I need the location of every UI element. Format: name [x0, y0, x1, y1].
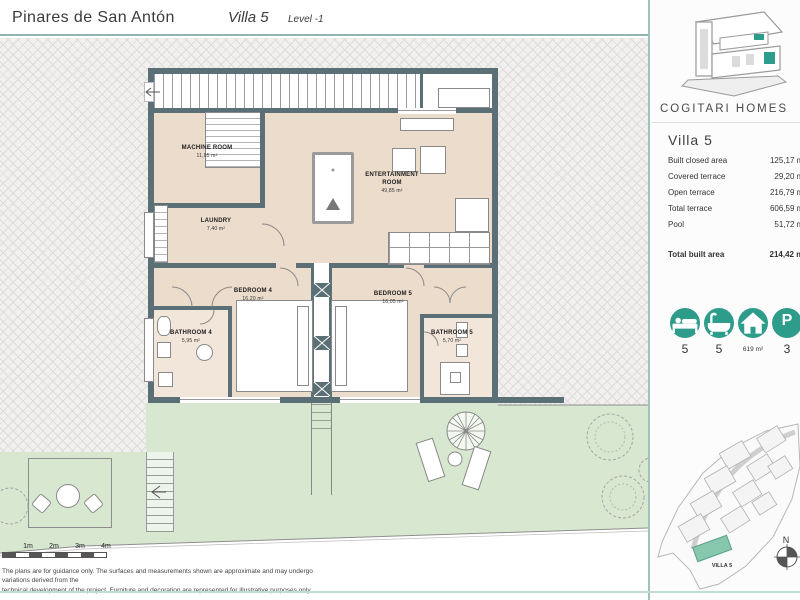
bed-5-pillow: [335, 306, 347, 386]
staircase: [154, 74, 420, 110]
parking-count: 3: [767, 342, 800, 356]
exterior-steps-left: [146, 452, 174, 532]
spec-row-covered-terrace: Covered terrace 29,20 m²: [668, 172, 800, 187]
scale-bar: [2, 552, 107, 558]
shower-4: [196, 344, 213, 361]
parking-icon: P: [772, 308, 800, 338]
plot-boundary-line: [0, 528, 648, 553]
room-label-laundry: LAUNDRY 7,40 m²: [189, 218, 243, 234]
wall-bath4-top: [154, 306, 232, 310]
sofa-corner: [455, 198, 489, 232]
window-sill: [400, 118, 454, 131]
spec-row-pool: Pool 51,72 m²: [668, 220, 800, 235]
room-label-bedroom4: BEDROOM 4 16,20 m²: [223, 288, 283, 304]
plan-sheet: Pinares de San Antón Villa 5 Level -1: [0, 0, 800, 600]
project-title: Pinares de San Antón: [12, 9, 175, 27]
wall-machine-right: [260, 108, 265, 208]
laundry-window: [144, 212, 154, 258]
wall-corridor-a: [154, 263, 276, 268]
house-icon: [738, 308, 768, 338]
sidebar: [650, 0, 800, 600]
room-label-entertainment: ENTERTAINMENT ROOM 49,85 m²: [359, 172, 425, 195]
sofa-sectional: [388, 232, 490, 265]
scale-label-4m: 4m: [101, 543, 111, 550]
shower-5-drain: [450, 372, 461, 383]
landing-window: [438, 88, 490, 108]
spec-row-built-closed: Built closed area 125,17 m²: [668, 156, 800, 171]
wall-bath5: [420, 314, 424, 397]
level-label: Level -1: [288, 14, 324, 25]
sidebar-villa-title: Villa 5: [668, 132, 713, 148]
bathroom4-window: [144, 318, 154, 382]
spec-row-total-built: Total built area 214,42 m²: [668, 250, 800, 265]
villa-title-header: Villa 5: [228, 9, 269, 26]
bottom-accent-line: [0, 591, 800, 593]
room-label-bathroom5: BATHROOM 5 5,70 m²: [426, 330, 478, 346]
armchair-1: [392, 148, 416, 172]
bedroom-partition: [311, 263, 332, 397]
brand-name: COGITARI HOMES: [660, 103, 788, 115]
spec-row-total-terrace: Total terrace 606,59 m²: [668, 204, 800, 219]
sidebar-divider: [648, 0, 650, 600]
exterior-steps-centre: [311, 403, 332, 495]
spec-row-open-terrace: Open terrace 216,79 m²: [668, 188, 800, 203]
sidebar-rule: [652, 122, 800, 123]
sink-5b: [456, 344, 468, 357]
billiard-table: [312, 152, 354, 224]
laundry-closet: [154, 205, 168, 263]
wall-bath5-top: [420, 314, 492, 318]
room-label-machine: MACHINE ROOM 11,65 m²: [177, 145, 237, 161]
bed-icon: [670, 308, 700, 338]
entry-opening: [144, 82, 154, 102]
garden-table: [56, 484, 80, 508]
scale-label-1m: 1m: [23, 543, 33, 550]
wall-machine-bottom: [154, 203, 265, 208]
bedroom5-terrace-door: [340, 397, 420, 403]
wall-bath4: [228, 306, 232, 397]
entertainment-window: [398, 108, 456, 114]
bedroom4-terrace-door: [180, 397, 280, 403]
room-label-bedroom5: BEDROOM 5 16,05 m²: [363, 291, 423, 307]
armchair-2: [420, 146, 446, 174]
washbox-4: [158, 372, 173, 387]
retaining-wall: [498, 397, 564, 403]
bathtub-icon: [704, 308, 734, 338]
room-label-bathroom4: BATHROOM 4 5,95 m²: [165, 330, 217, 346]
scale-label-3m: 3m: [75, 543, 85, 550]
bed-4-pillow: [297, 306, 309, 386]
scale-label-2m: 2m: [49, 543, 59, 550]
